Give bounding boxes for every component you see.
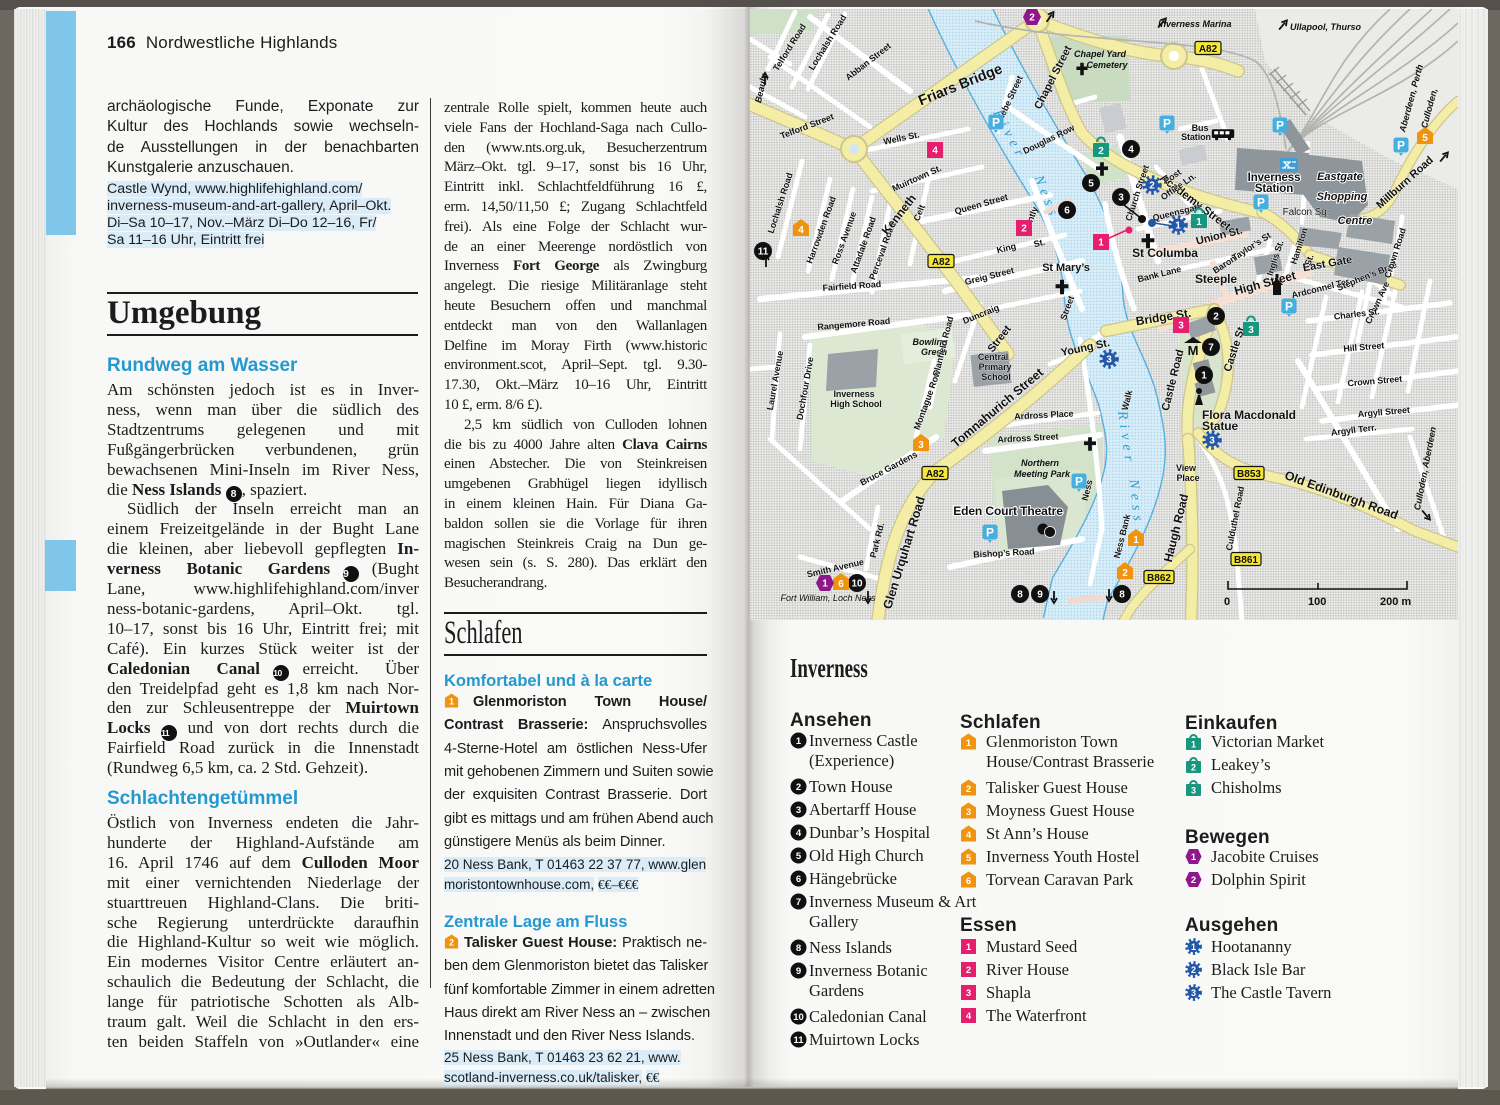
svg-text:P: P [986,526,994,540]
svg-text:1: 1 [1133,535,1139,546]
svg-text:3: 3 [966,807,971,818]
svg-text:5: 5 [1422,133,1428,144]
svg-text:2: 2 [1213,312,1219,323]
svg-text:Northern: Northern [1021,458,1060,468]
svg-text:5: 5 [966,853,972,864]
svg-text:6: 6 [796,874,801,885]
svg-text:1: 1 [966,942,972,953]
svg-text:3: 3 [1178,321,1184,332]
svg-text:Chapel Yard: Chapel Yard [1074,49,1127,59]
svg-text:9: 9 [1037,590,1043,601]
svg-text:Inverness Marina: Inverness Marina [1158,19,1232,29]
svg-text:B861: B861 [1234,555,1258,566]
svg-text:4: 4 [966,1011,972,1022]
svg-text:100: 100 [1308,596,1326,608]
svg-text:2: 2 [1029,13,1035,24]
svg-text:2: 2 [1122,568,1128,579]
svg-text:P: P [1397,139,1405,153]
svg-text:Eastgate: Eastgate [1317,171,1363,183]
svg-text:1: 1 [1201,371,1207,382]
svg-text:1: 1 [1191,942,1196,952]
svg-text:A82: A82 [932,257,951,268]
svg-text:View: View [1176,463,1197,473]
svg-text:2: 2 [1149,181,1155,192]
svg-text:2: 2 [966,784,971,795]
svg-text:3: 3 [796,805,801,816]
svg-text:Station: Station [1181,132,1211,142]
svg-text:8: 8 [1017,590,1023,601]
svg-text:P: P [992,116,1000,130]
svg-text:Shopping: Shopping [1317,191,1368,203]
svg-text:4: 4 [966,830,972,841]
svg-text:2: 2 [1098,146,1104,157]
svg-text:B862: B862 [1147,573,1171,584]
svg-text:P: P [1075,475,1083,489]
svg-text:School: School [981,372,1010,382]
svg-text:High School: High School [830,399,881,409]
svg-text:10: 10 [851,579,863,590]
svg-text:Statue: Statue [1202,419,1239,433]
svg-text:9: 9 [796,966,801,977]
svg-text:Eden Court Theatre: Eden Court Theatre [953,504,1063,518]
svg-text:St Columba: St Columba [1132,246,1198,260]
svg-text:2: 2 [1191,965,1196,975]
svg-text:2: 2 [1021,224,1027,235]
svg-text:Primary: Primary [979,362,1012,372]
svg-text:0: 0 [1224,596,1230,608]
svg-text:1: 1 [1175,221,1181,232]
svg-text:Meeting Park: Meeting Park [1014,469,1071,479]
svg-text:Centre: Centre [1338,215,1373,227]
svg-text:1: 1 [1196,217,1202,228]
svg-text:Place: Place [1176,473,1199,483]
svg-text:8: 8 [796,943,801,954]
svg-text:Falcon Sq.: Falcon Sq. [1283,207,1330,218]
svg-text:1: 1 [1191,852,1197,863]
svg-text:2: 2 [966,965,971,976]
svg-text:Ullapool, Thurso: Ullapool, Thurso [1290,22,1362,32]
svg-text:St Mary’s: St Mary’s [1042,262,1090,274]
svg-text:2: 2 [1191,875,1196,886]
svg-text:7: 7 [796,897,801,908]
svg-text:1: 1 [822,579,828,590]
svg-text:11: 11 [758,247,769,258]
svg-text:3: 3 [1248,325,1254,336]
svg-text:4: 4 [798,225,804,236]
svg-text:2: 2 [449,937,454,947]
svg-text:6: 6 [1064,206,1070,217]
svg-text:B853: B853 [1237,469,1261,480]
svg-text:P: P [1285,300,1293,314]
svg-text:200 m: 200 m [1380,596,1411,608]
svg-text:3: 3 [918,440,924,451]
svg-text:Steeple: Steeple [1195,272,1237,286]
svg-text:8: 8 [1119,590,1125,601]
svg-text:P: P [1257,196,1265,210]
svg-text:3: 3 [966,988,971,999]
svg-text:6: 6 [838,579,844,590]
svg-text:10: 10 [793,1012,804,1023]
svg-text:3: 3 [1191,988,1196,998]
svg-text:3: 3 [1106,355,1112,366]
svg-text:Inverness: Inverness [833,389,874,399]
svg-text:2: 2 [796,782,801,793]
svg-text:11: 11 [793,1035,804,1046]
svg-text:M: M [1188,343,1199,358]
svg-text:1: 1 [1098,238,1104,249]
svg-text:A82: A82 [926,469,945,480]
svg-text:Station: Station [1255,183,1293,195]
svg-text:3: 3 [1118,193,1124,204]
svg-text:1: 1 [966,738,972,749]
svg-text:P: P [1163,117,1171,131]
svg-text:Cemetery: Cemetery [1086,60,1128,70]
svg-text:4: 4 [1128,145,1134,156]
svg-text:4: 4 [932,146,938,157]
svg-text:5: 5 [1088,179,1094,190]
svg-text:1: 1 [796,736,802,747]
svg-text:4: 4 [796,828,802,839]
svg-text:P: P [1276,119,1284,133]
svg-text:1: 1 [1191,740,1196,750]
svg-text:6: 6 [966,876,971,887]
svg-text:1: 1 [449,696,454,706]
svg-text:7: 7 [1208,343,1214,354]
svg-text:Fort William, Loch Ness: Fort William, Loch Ness [781,593,876,603]
svg-text:5: 5 [796,851,802,862]
svg-text:3: 3 [1191,786,1196,796]
svg-text:A82: A82 [1199,44,1218,55]
svg-text:3: 3 [1209,436,1215,447]
svg-text:2: 2 [1191,763,1196,773]
